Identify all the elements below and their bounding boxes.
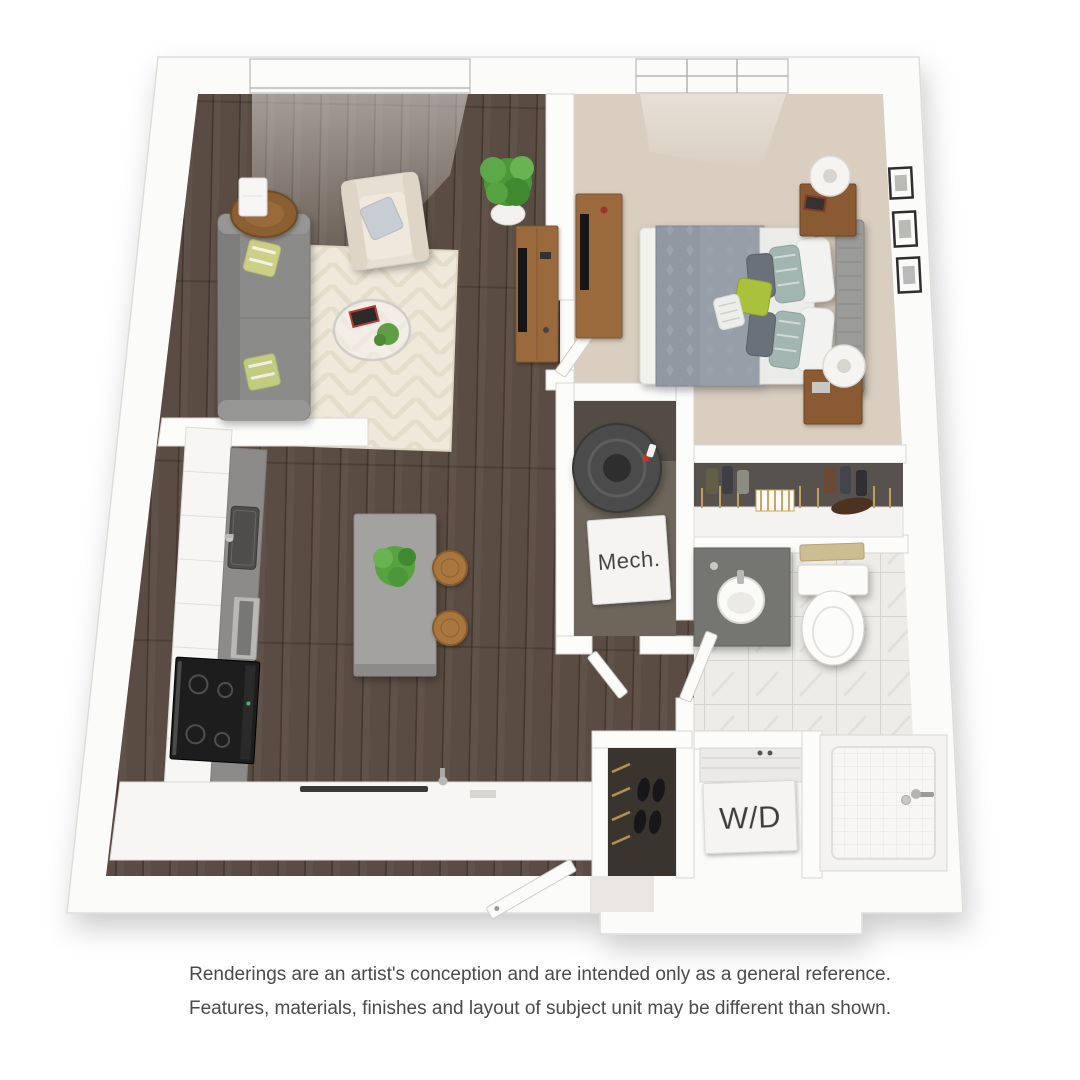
kitchen-island [354, 514, 436, 676]
wall-entry-closet-north [592, 731, 692, 748]
wall-mech-west [556, 383, 574, 654]
bed-pillow-dark [746, 311, 776, 357]
wall-hall-east-upper [676, 383, 694, 620]
picture-frame [893, 211, 917, 246]
shower-drain [902, 796, 911, 805]
towel-bar [800, 543, 865, 561]
floorplan-page: Mech. [0, 0, 1080, 1080]
desk-decor [601, 207, 608, 214]
disclaimer-line2: Features, materials, finishes and layout… [0, 992, 1080, 1026]
disclaimer: Renderings are an artist's conception an… [0, 958, 1080, 1026]
shower [820, 735, 947, 871]
sofa-pillow [243, 239, 282, 278]
bedroom-tv [580, 214, 589, 290]
wall-mech-south-left [556, 636, 592, 654]
nightstand-lamp [810, 156, 850, 196]
sofa-back [218, 214, 240, 420]
picture-frame [889, 167, 913, 198]
nightstand-lamp [823, 345, 865, 387]
sofa [218, 214, 310, 420]
wall-mech-south-right [640, 636, 694, 654]
living-tv-console [516, 226, 558, 362]
nightstand-book [803, 195, 827, 213]
wall-bedroom-south [694, 445, 906, 463]
wall-wd-east [802, 731, 822, 878]
bedroom-window [636, 59, 788, 93]
washer-front [700, 748, 802, 782]
island-stool [433, 611, 467, 645]
wd-label-text: W/D [719, 799, 782, 836]
closet-striped-box [756, 490, 794, 511]
picture-frame [897, 257, 921, 292]
kitchen-peninsula [110, 768, 592, 860]
water-heater [573, 424, 661, 512]
bedroom-desk [576, 194, 622, 338]
peninsula-edge-trim [300, 786, 428, 792]
mech-label: Mech. [587, 515, 671, 604]
toilet-bowl [802, 591, 864, 665]
nightstand-item [812, 382, 830, 393]
armchair [340, 171, 430, 271]
disclaimer-line1: Renderings are an artist's conception an… [0, 958, 1080, 992]
kitchen-stove [170, 657, 260, 764]
washer-dryer-closet: W/D [700, 748, 802, 854]
sofa-arm [218, 400, 310, 420]
island-side-face [354, 664, 436, 676]
wd-label: W/D [703, 780, 797, 853]
table-lamp [239, 178, 267, 216]
wall-hall-east-lower [676, 698, 694, 878]
wall-entry-closet-west [592, 731, 608, 878]
bedroom-closet [694, 463, 903, 537]
living-tv [518, 248, 527, 332]
vanity-faucet [737, 570, 744, 584]
peninsula-item [470, 790, 496, 798]
plant-pot [491, 203, 525, 225]
closet-shelf [694, 507, 903, 537]
entry-threshold [590, 876, 654, 912]
toilet [798, 565, 868, 665]
coffee-table [334, 300, 410, 360]
mech-label-text: Mech. [597, 546, 661, 575]
shower-tray [832, 747, 935, 859]
island-stool [433, 551, 467, 585]
media-player [540, 252, 551, 259]
wall-wd-north [694, 731, 806, 749]
entry-closet [608, 748, 676, 876]
living-room-window [250, 59, 470, 93]
sofa-pillow [243, 353, 281, 391]
floorplan-svg: Mech. [0, 0, 1080, 1080]
